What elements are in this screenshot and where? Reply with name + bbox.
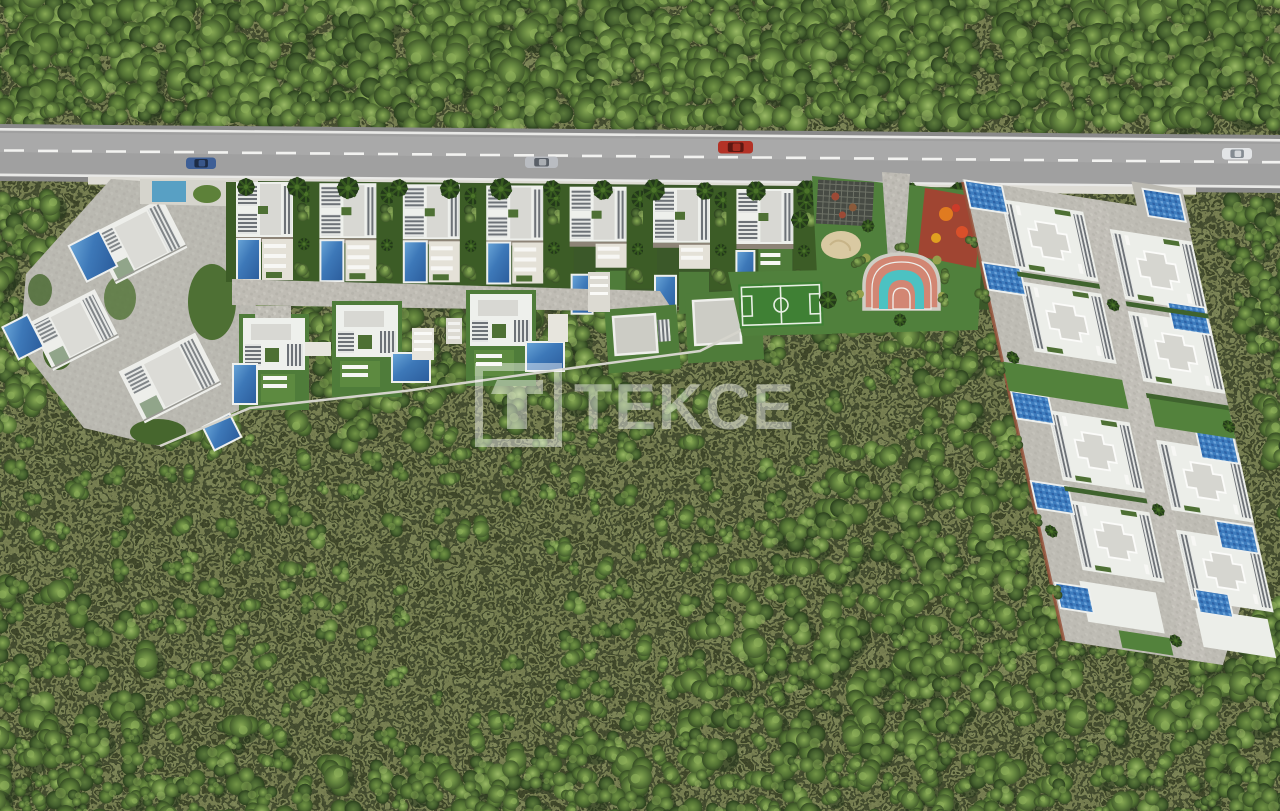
svg-text:TEKCE: TEKCE (574, 370, 796, 443)
